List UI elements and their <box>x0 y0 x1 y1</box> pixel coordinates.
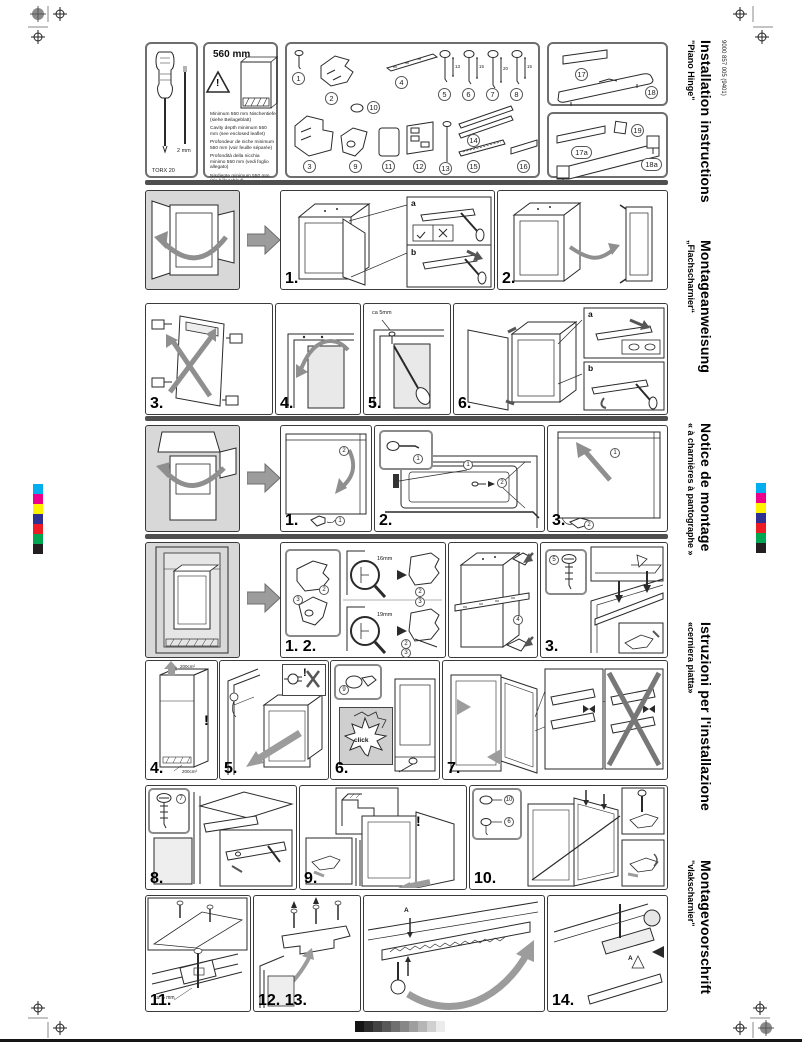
click-label: click <box>354 738 368 745</box>
big-arrow-icon-row3 <box>247 462 281 494</box>
subtitle-en-text: "Piano Hinge" <box>686 40 696 203</box>
tools-panel: 2 mm TORX 20 <box>145 42 198 178</box>
screw-5-length: 13 <box>455 64 460 69</box>
color-swatch <box>427 1021 436 1032</box>
row3-step-1-number: 1. <box>285 513 298 529</box>
vent-area-bottom-label: 200cm² <box>182 769 197 774</box>
screw-7-inset: 7 <box>148 788 190 834</box>
step-3-number: 3. <box>150 396 163 412</box>
color-swatch <box>33 534 43 544</box>
row3-step-3-number: 3. <box>552 513 565 529</box>
color-swatch <box>33 504 43 514</box>
step-10-number: 10. <box>474 871 496 887</box>
bracket-detail <box>287 551 339 635</box>
row4-step-3-panel: 5 3. <box>540 542 668 658</box>
door-swap-overview <box>146 191 238 288</box>
step-11-number: 11. <box>150 993 171 1009</box>
torx-label: TORX 20 <box>152 168 175 174</box>
title-it: Istruzioni per l'installazione «cerniera… <box>686 622 714 811</box>
color-swatch <box>33 514 43 524</box>
step-3-panel: 3. <box>145 303 273 415</box>
subtitle-de-text: „Flachscharnier“ <box>686 240 696 373</box>
seq-1-badge: 1 <box>335 516 345 526</box>
step-7-number: 7. <box>447 761 460 777</box>
parts-illustration <box>287 44 542 180</box>
title-en-text: Installation instructions <box>698 40 714 203</box>
section-divider-3 <box>145 534 668 539</box>
section-divider-2 <box>145 416 668 421</box>
cavity-notes: Minimum 550 mm Nischentiefe (siehe Beila… <box>210 112 276 188</box>
warning-exclamation: ! <box>216 79 219 89</box>
cavity-depth-panel: 560 mm ! Minimum 550 mm Nischentiefe (si… <box>203 42 278 178</box>
title-fr-text: Notice de montage <box>698 423 714 556</box>
color-swatch <box>355 1021 364 1032</box>
dimension-a-label-2: A <box>628 956 633 963</box>
niche-overview <box>146 543 238 656</box>
step-4-number: 4. <box>280 396 293 412</box>
title-fr: Notice de montage « à charnières à panto… <box>686 423 714 556</box>
step-6-number: 6. <box>458 396 471 412</box>
color-swatch <box>418 1021 427 1032</box>
registration-mark-top-left <box>22 4 72 46</box>
color-swatch <box>409 1021 418 1032</box>
bottom-rule <box>0 1039 802 1042</box>
color-swatch <box>364 1021 373 1032</box>
bracket-3-badge: 3 <box>293 595 303 605</box>
rail-4-badge: 4 <box>513 615 523 625</box>
detail-b-label: b <box>411 248 416 257</box>
detail-a-label-2: a <box>588 310 593 319</box>
step-8-number: 8. <box>150 871 163 887</box>
hinge-check-illustration <box>443 661 666 778</box>
detail-a-label: a <box>411 199 416 208</box>
part-7-badge: 7 <box>486 88 499 101</box>
instruction-sheet: 9000 857 005 (9401) Installation instruc… <box>0 0 802 1044</box>
step-4b-number: 4. <box>150 761 163 777</box>
note-it: Profondità della nicchia minimo 550 mm (… <box>210 154 276 171</box>
seq-2-badge-c: 2 <box>584 520 594 530</box>
pin-inset: 1 <box>379 430 433 470</box>
note-en: Cavity depth minimum 550 mm (see enclose… <box>210 126 276 137</box>
part-14-badge: 14 <box>467 134 480 147</box>
registration-mark-bottom-right <box>726 1000 782 1040</box>
overview-panel-row3 <box>145 425 240 532</box>
big-arrow-icon-row4 <box>247 582 281 614</box>
part-1-badge: 1 <box>292 72 305 85</box>
subtitle-it-text: «cerniera piatta» <box>686 622 696 811</box>
step-14-number: 14. <box>552 993 574 1009</box>
part-2-badge: 2 <box>325 92 338 105</box>
color-swatch <box>382 1021 391 1032</box>
big-arrow-icon-row1 <box>247 224 281 256</box>
row3-step-2-number: 2. <box>379 513 392 529</box>
part-18-badge: 18 <box>645 86 658 99</box>
part-3-badge: 3 <box>303 160 316 173</box>
parts-10-6-inset: 10 6 <box>472 788 522 840</box>
part-6-ref-badge: 6 <box>504 817 514 827</box>
result-2-badge-top: 2 <box>415 587 425 597</box>
result-3-badge-top: 3 <box>415 597 425 607</box>
step-1-number: 1. <box>285 271 298 287</box>
note-de: Minimum 550 mm Nischentiefe (siehe Beila… <box>210 112 276 123</box>
parts-17-18-panel: 17 18 <box>547 42 668 106</box>
detail-b-label-2: b <box>588 364 593 373</box>
print-color-bar-left <box>33 484 43 554</box>
part-17-badge: 17 <box>575 68 588 81</box>
color-swatch <box>756 513 766 523</box>
step-6-panel: a b 6. <box>453 303 668 415</box>
title-de: Montageanweisung „Flachscharnier“ <box>686 240 714 373</box>
color-swatch <box>756 503 766 513</box>
title-de-text: Montageanweisung <box>698 240 714 373</box>
parts-panel: 1 2 4 5 6 7 8 13 15 20 15 10 3 9 11 12 1… <box>285 42 540 178</box>
step-1-panel: a b 1. <box>280 190 495 290</box>
subtitle-fr-text: « à charnières à pantographe » <box>686 423 696 556</box>
color-swatch <box>33 494 43 504</box>
hex-size-label: 2 mm <box>177 148 191 154</box>
step-9-illustration <box>300 786 465 888</box>
overview-panel-row4 <box>145 542 240 658</box>
part-15-badge: 15 <box>467 160 480 173</box>
row3-step-2-panel: 1 1 2 2. <box>374 425 545 532</box>
part-11-badge: 11 <box>382 160 395 173</box>
part-10-badge: 10 <box>367 101 380 114</box>
step-14-panel: A 14. <box>547 895 668 1012</box>
screw-5-inset: 5 <box>545 549 587 595</box>
row4-rail-panel: 4 <box>448 542 538 658</box>
step-9-number: 9. <box>304 871 317 887</box>
part-8-badge: 8 <box>510 88 523 101</box>
parts-17a-19-18a-panel: 17a 19 18a <box>547 112 668 178</box>
color-swatch <box>373 1021 382 1032</box>
seq-1-badge-b: 1 <box>463 460 473 470</box>
step-2-number: 2. <box>502 271 515 287</box>
lock-part-inset: 9 <box>334 664 382 700</box>
step-6b-panel: 9 click 6. <box>330 660 440 780</box>
click-starburst <box>340 708 391 762</box>
row3-step-1-panel: 2 1 1. <box>280 425 372 532</box>
gap-5mm-label: ca 5mm <box>372 310 392 316</box>
part-10-ref-badge: 10 <box>504 795 514 805</box>
section-divider-1 <box>145 180 668 185</box>
step-7-panel: 7. <box>442 660 668 780</box>
vent-area-top-label: 200cm² <box>180 664 195 669</box>
screwdriver-icon <box>147 44 200 180</box>
step-10-panel: 10 6 10. <box>469 785 668 890</box>
color-swatch <box>33 524 43 534</box>
step-6-illustration <box>454 304 666 413</box>
step-9-panel: ! 9. <box>299 785 467 890</box>
screw-6-length: 15 <box>479 64 484 69</box>
step-5-number: 5. <box>368 396 381 412</box>
print-color-bar-right <box>756 483 766 553</box>
step-2-illustration <box>498 191 666 288</box>
part-4-badge: 4 <box>395 76 408 89</box>
part-9-badge: 9 <box>349 160 362 173</box>
title-en: Installation instructions "Piano Hinge" <box>686 40 714 203</box>
color-swatch <box>756 543 766 553</box>
step-5b-panel: ! 5. <box>219 660 329 780</box>
color-swatch <box>400 1021 409 1032</box>
screw-7-badge: 7 <box>176 794 186 804</box>
step-8-panel: 7 8. <box>145 785 297 890</box>
seq-2-badge-b: 2 <box>497 478 507 488</box>
document-number: 9000 857 005 (9401) <box>720 40 726 96</box>
result-3-badge-bot: 3 <box>401 648 411 658</box>
color-swatch <box>756 493 766 503</box>
title-nl-text: Montagevoorschrift <box>698 860 714 994</box>
bracket-2-badge: 2 <box>319 585 329 595</box>
part-17a-badge: 17a <box>571 146 592 159</box>
title-it-text: Istruzioni per l'installazione <box>698 622 714 811</box>
screw-7-length: 20 <box>503 66 508 71</box>
seq-2-badge: 2 <box>339 446 349 456</box>
row4-step-1-2-number: 1. 2. <box>285 639 316 655</box>
row3-step-3-illustration <box>548 426 666 530</box>
pin-1-badge: 1 <box>413 454 423 464</box>
step-4b-panel: 200cm² 200cm² ! 4. <box>145 660 218 780</box>
part-12-badge: 12 <box>413 160 426 173</box>
plug-warning-inset: ! <box>282 664 326 696</box>
part-6-badge: 6 <box>462 88 475 101</box>
bracket-inset: 2 3 <box>285 549 341 637</box>
plug-warning-exclamation: ! <box>303 668 307 679</box>
spring-rail-panel: A <box>363 895 545 1012</box>
row4-step-1-2-panel: 2 3 16mm 19mm 2 3 2 3 1. 2. <box>280 542 446 658</box>
step-11-panel: ca. 5 mm 11. <box>145 895 251 1012</box>
pin-detail <box>381 432 431 468</box>
step-2-panel: 2. <box>497 190 668 290</box>
row3-step-3-panel: 1 2 3. <box>547 425 668 532</box>
color-swatch <box>756 533 766 543</box>
note-fr: Profondeur de niche minimum 550 mm (voir… <box>210 140 276 151</box>
part-16-badge: 16 <box>517 160 530 173</box>
row4-step-3-number: 3. <box>545 639 558 655</box>
part-13-badge: 13 <box>439 162 452 175</box>
step-5b-number: 5. <box>224 761 237 777</box>
screw-8-length: 15 <box>527 64 532 69</box>
step-12-13-number: 12. 13. <box>258 993 307 1009</box>
screw-5-badge: 5 <box>549 555 559 565</box>
color-swatch <box>436 1021 445 1032</box>
part-5-badge: 5 <box>438 88 451 101</box>
color-swatch <box>33 544 43 554</box>
spring-rail-illustration <box>364 896 543 1010</box>
step-6b-number: 6. <box>335 761 348 777</box>
vent-warning: ! <box>204 713 209 727</box>
part-19-badge: 19 <box>631 124 644 137</box>
color-swatch <box>756 523 766 533</box>
click-inset: click <box>339 707 393 765</box>
step-4-panel: 4. <box>275 303 361 415</box>
registration-mark-top-right <box>726 4 776 46</box>
color-swatch <box>391 1021 400 1032</box>
color-swatch <box>756 483 766 493</box>
print-grayscale-bar <box>355 1021 445 1032</box>
step-1-illustration <box>281 191 493 288</box>
seq-1-badge-c: 1 <box>610 448 620 458</box>
step-12-13-panel: 12. 13. <box>253 895 361 1012</box>
step-5-panel: ca 5mm 5. <box>363 303 451 415</box>
lock-9-badge: 9 <box>339 685 349 695</box>
part-18a-badge: 18a <box>641 158 662 171</box>
gap-19mm-label: 19mm <box>377 613 392 619</box>
subtitle-nl-text: "vlakscharnier" <box>686 860 696 994</box>
panel-removal-overview <box>146 426 238 530</box>
color-swatch <box>33 484 43 494</box>
registration-mark-bottom-left <box>22 1000 72 1040</box>
step-3-illustration <box>146 304 271 413</box>
overview-panel-row1 <box>145 190 240 290</box>
panel-warning: ! <box>416 814 421 828</box>
dimension-a-label: A <box>404 908 409 915</box>
rail-fitting-illustration <box>449 543 536 656</box>
title-nl: Montagevoorschrift "vlakscharnier" <box>686 860 714 994</box>
gap-16mm-label: 16mm <box>377 557 392 563</box>
